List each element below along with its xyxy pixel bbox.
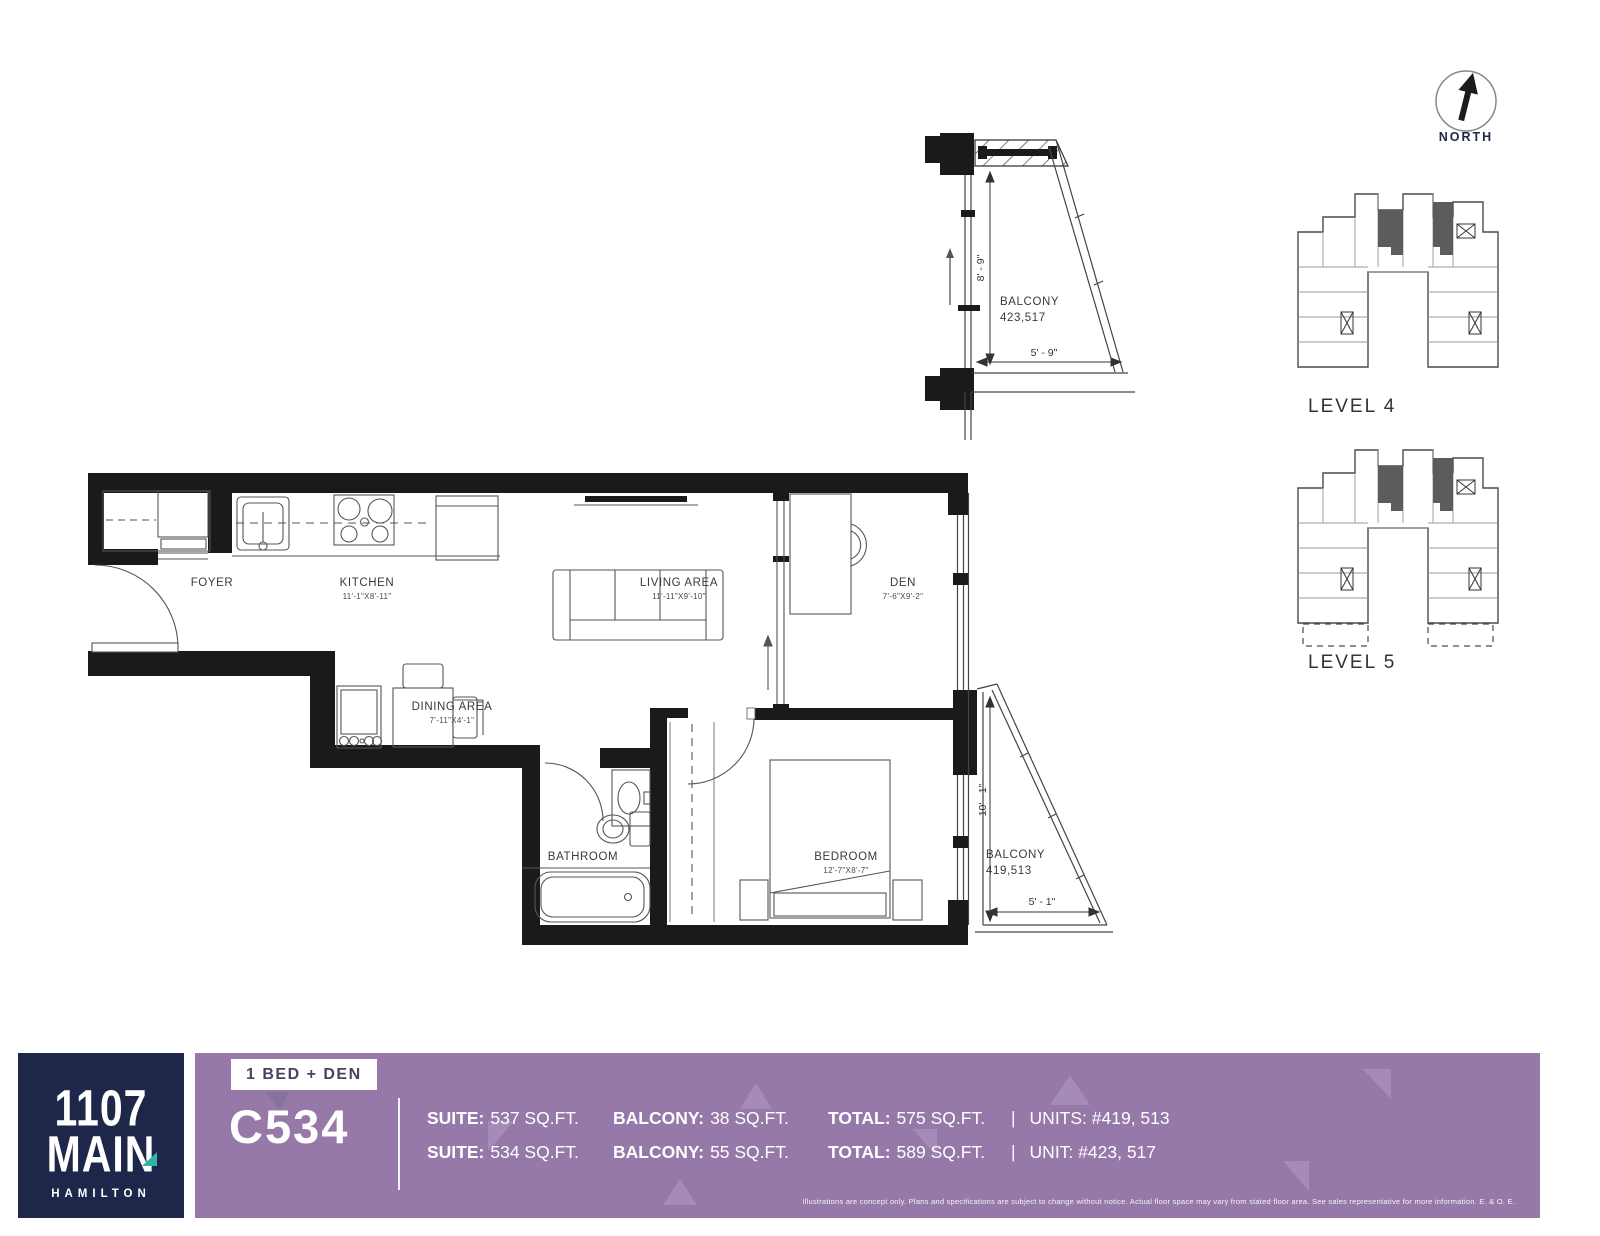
suite-label: SUITE: — [427, 1108, 484, 1129]
units-value: UNITS: #419, 513 — [1030, 1108, 1170, 1129]
balcony-value: 38 SQ.FT. — [710, 1108, 789, 1129]
balcony-value: 55 SQ.FT. — [710, 1142, 789, 1163]
plan-type-tag: 1 BED + DEN — [231, 1059, 377, 1090]
footer-bar: 1 BED + DEN C534 SUITE:537 SQ.FT. BALCON… — [195, 1053, 1540, 1218]
plan-drawing: 10' - 1" 5' - 1" BALCONY 419,513 FOYER K… — [0, 0, 1600, 1020]
den-partition — [764, 494, 866, 704]
level5-keyplan — [1298, 450, 1498, 646]
total-label: TOTAL: — [828, 1142, 891, 1163]
balcony-main-width-dim: 5' - 1" — [1029, 896, 1056, 908]
living-label: LIVING AREA — [640, 577, 718, 589]
suite-value: 534 SQ.FT. — [490, 1142, 579, 1163]
balcony-label: BALCONY: — [613, 1142, 704, 1163]
room-labels: FOYER KITCHEN 11'-1"X8'-11" LIVING AREA … — [191, 577, 924, 875]
bathroom-fixtures — [522, 770, 650, 922]
balcony-label: BALCONY: — [613, 1108, 704, 1129]
stats-row-2: SUITE:534 SQ.FT. BALCONY:55 SQ.FT. TOTAL… — [427, 1142, 1170, 1176]
dining-dims: 7'-11"X4'-1" — [430, 716, 475, 725]
foyer-label: FOYER — [191, 577, 234, 589]
balcony-main-height-dim: 10' - 1" — [977, 783, 989, 816]
suite-stats: SUITE:537 SQ.FT. BALCONY:38 SQ.FT. TOTAL… — [427, 1108, 1170, 1176]
bedroom-fixtures — [670, 722, 922, 922]
brand-logo: 1107 MAIN HAMILTON — [18, 1053, 184, 1218]
north-label: NORTH — [1439, 130, 1493, 144]
deco-triangle-icon — [1283, 1161, 1309, 1191]
balcony-main-shape — [975, 684, 1113, 932]
tv — [574, 496, 698, 505]
balcony-detail-width-dim: 5' - 9" — [1031, 347, 1058, 359]
balcony-detail-label: BALCONY — [1000, 296, 1059, 308]
stats-divider — [398, 1098, 400, 1190]
den-label: DEN — [890, 577, 916, 589]
bedroom-dims: 12'-7"X8'-7" — [823, 866, 868, 875]
level4-keyplan — [1298, 194, 1498, 367]
floorplan-sheet: 10' - 1" 5' - 1" BALCONY 419,513 FOYER K… — [0, 0, 1600, 1236]
living-dims: 11'-11"X9'-10" — [652, 592, 706, 601]
units-value: UNIT: #423, 517 — [1030, 1142, 1156, 1163]
kitchen-dims: 11'-1"X8'-11" — [343, 592, 392, 601]
deco-triangle-icon — [1363, 1069, 1391, 1099]
total-value: 589 SQ.FT. — [897, 1142, 986, 1163]
balcony-detail-units: 423,517 — [1000, 312, 1046, 324]
kitchen-fixtures — [103, 491, 500, 560]
dining-label: DINING AREA — [412, 701, 493, 713]
separator: | — [1011, 1108, 1016, 1129]
total-label: TOTAL: — [828, 1108, 891, 1129]
unit-code: C534 — [229, 1099, 349, 1154]
deco-triangle-icon — [740, 1083, 772, 1109]
logo-line2: MAIN — [18, 1125, 184, 1183]
kitchen-label: KITCHEN — [340, 577, 395, 589]
suite-label: SUITE: — [427, 1142, 484, 1163]
den-dims: 7'-6"X9'-2" — [883, 592, 924, 601]
balcony-detail-height-dim: 8' - 9" — [975, 254, 987, 281]
bathroom-label: BATHROOM — [548, 851, 618, 863]
level4-label: LEVEL 4 — [1308, 396, 1396, 417]
suite-value: 537 SQ.FT. — [490, 1108, 579, 1129]
disclaimer: Illustrations are concept only. Plans an… — [802, 1197, 1515, 1206]
logo-city: HAMILTON — [18, 1188, 184, 1200]
level5-label: LEVEL 5 — [1308, 652, 1396, 673]
bedroom-label: BEDROOM — [814, 851, 878, 863]
separator: | — [1011, 1142, 1016, 1163]
balcony-detail-shape — [925, 133, 1135, 440]
stats-row-1: SUITE:537 SQ.FT. BALCONY:38 SQ.FT. TOTAL… — [427, 1108, 1170, 1142]
balcony-main-units: 419,513 — [986, 865, 1032, 877]
total-value: 575 SQ.FT. — [897, 1108, 986, 1129]
deco-triangle-icon — [663, 1179, 697, 1205]
deco-triangle-icon — [1050, 1075, 1090, 1105]
north-arrow-icon — [1436, 70, 1496, 131]
balcony-main-label: BALCONY — [986, 849, 1045, 861]
balcony-main-dims — [986, 697, 1099, 921]
